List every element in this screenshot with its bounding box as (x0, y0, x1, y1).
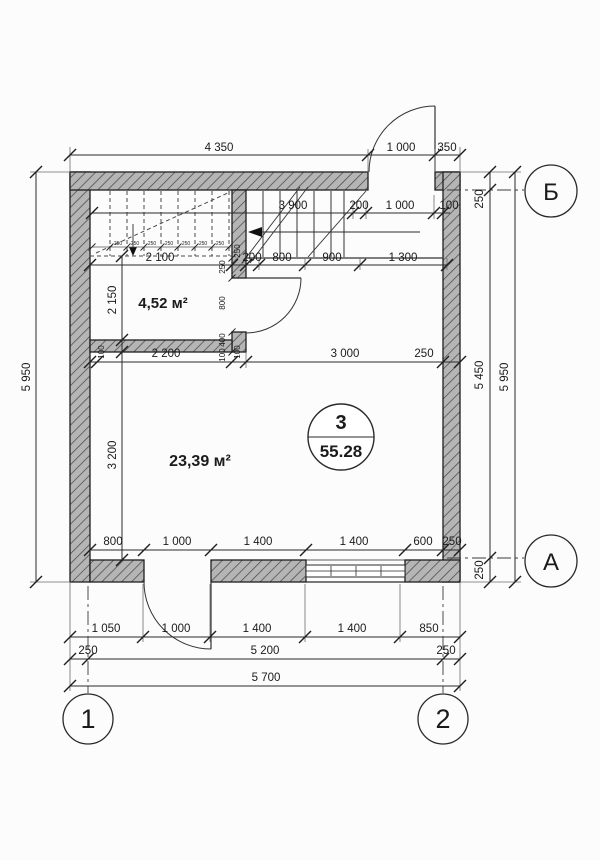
entrance-door-top (369, 106, 435, 172)
dim-label: 200 (349, 200, 368, 212)
dim-label: 1 400 (243, 623, 272, 635)
tread-dim: 250 (199, 241, 208, 247)
dim-label: 1 300 (389, 252, 418, 264)
room-number: 3 (335, 412, 346, 434)
dim-label: 1 000 (162, 623, 191, 635)
dim-label: 3 000 (331, 348, 360, 360)
tread-dim: 250 (165, 241, 174, 247)
dim-label: 4 350 (205, 142, 234, 154)
dim-label: 5 700 (252, 672, 281, 684)
dim-label: 600 (413, 536, 432, 548)
dim-label: 250 (474, 560, 486, 579)
dim-label: 1 000 (387, 142, 416, 154)
dim-label: 800 (272, 252, 291, 264)
dim-label: 200 (242, 252, 261, 264)
dim-label: 5 950 (499, 363, 511, 392)
wall-bottom-stub-right (405, 560, 460, 582)
dim-label: 900 (322, 252, 341, 264)
dim-label: 350 (437, 142, 456, 154)
floor-plan-page: 250 250 250 250 250 250 250 (0, 0, 600, 860)
wall-top-left-segment (70, 172, 368, 190)
floor-plan-drawing: 250 250 250 250 250 250 250 (0, 0, 600, 860)
axis-col-1: 1 (80, 704, 95, 734)
wall-right (443, 172, 460, 582)
dim-label: 3 200 (107, 441, 119, 470)
tread-dim: 250 (216, 241, 225, 247)
dim-label: 100 (439, 200, 458, 212)
wall-left (70, 172, 90, 582)
room-total-area: 55.28 (320, 442, 363, 461)
dim-label: 1 000 (386, 200, 415, 212)
dim-label: 1 400 (340, 536, 369, 548)
tread-dim: 250 (114, 241, 123, 247)
room-area-main: 23,39 м² (169, 453, 231, 470)
dim-label: 1 050 (92, 623, 121, 635)
room-number-badge: 3 55.28 (308, 404, 374, 470)
window-symbol (306, 560, 405, 582)
dim-label: 1 000 (163, 536, 192, 548)
wall-bottom-stub-left (90, 560, 144, 582)
room-labels: 4,52 м² 23,39 м² (138, 295, 231, 470)
dim-label: 250 (78, 645, 97, 657)
axis-row-b: Б (543, 179, 559, 206)
dimension-labels: 4 350 1 000 350 3 900 200 1 000 100 2 10… (21, 142, 511, 684)
dim-label: 100 (97, 345, 106, 359)
wall-bottom-stub-middle (211, 560, 306, 582)
dim-label: 100 (218, 348, 227, 362)
dim-label: 250 (474, 189, 486, 208)
dim-label: 100 (233, 345, 242, 359)
walk-arrow-left-icon (248, 227, 262, 237)
axis-row-a: А (543, 549, 559, 576)
dim-label: 1 400 (338, 623, 367, 635)
dim-label: 250 (218, 260, 227, 274)
dim-label: 800 (103, 536, 122, 548)
dim-label: 250 (442, 536, 461, 548)
exterior-door-bottom (144, 582, 211, 649)
dim-label: 5 200 (251, 645, 280, 657)
dim-label: 1 400 (244, 536, 273, 548)
dim-label: 800 (218, 296, 227, 310)
dim-label: 2 150 (107, 286, 119, 315)
dim-label: 850 (419, 623, 438, 635)
dim-label: 5 450 (474, 361, 486, 390)
walk-arrow-down-icon (129, 247, 137, 256)
interior-door (246, 278, 301, 333)
dim-label: 250 (414, 348, 433, 360)
room-area-small: 4,52 м² (138, 295, 187, 312)
axis-col-2: 2 (435, 704, 450, 734)
tread-dim: 250 (182, 241, 191, 247)
dim-label: 3 900 (279, 200, 308, 212)
dim-label: 2 200 (152, 348, 181, 360)
tread-dim: 250 (131, 241, 140, 247)
dim-label: 5 950 (21, 363, 33, 392)
dim-label: 2 100 (146, 252, 175, 264)
dim-label: 250 (436, 645, 455, 657)
tread-dim: 250 (148, 241, 157, 247)
dim-label: 400 (218, 333, 227, 347)
dim-label: 250 (233, 244, 242, 258)
